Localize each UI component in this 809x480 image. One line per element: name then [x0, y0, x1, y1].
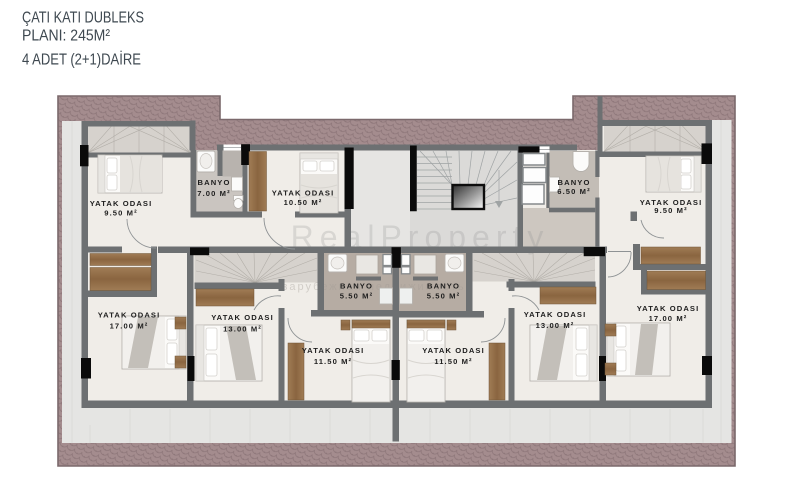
svg-text:17.00 M²: 17.00 M²	[649, 314, 688, 323]
svg-text:YATAK ODASI: YATAK ODASI	[272, 189, 335, 198]
svg-text:BANYO: BANYO	[198, 178, 231, 187]
svg-text:YATAK ODASI: YATAK ODASI	[637, 304, 700, 313]
svg-text:PLANI: 245M²: PLANI: 245M²	[22, 28, 111, 45]
svg-text:ÇATI KATI DUBLEKS: ÇATI KATI DUBLEKS	[22, 10, 144, 27]
svg-text:YATAK ODASI: YATAK ODASI	[422, 346, 485, 355]
svg-text:10.50 M²: 10.50 M²	[284, 198, 323, 207]
svg-text:11.50 M²: 11.50 M²	[314, 357, 352, 366]
svg-text:9.50 M²: 9.50 M²	[654, 206, 687, 215]
svg-text:9.50 M²: 9.50 M²	[104, 209, 137, 218]
svg-text:YATAK ODASI: YATAK ODASI	[211, 313, 274, 322]
svg-text:YATAK ODASI: YATAK ODASI	[90, 199, 153, 208]
svg-text:11.50 M²: 11.50 M²	[434, 357, 472, 366]
svg-text:7.00 M²: 7.00 M²	[197, 189, 230, 198]
svg-text:5.50 M²: 5.50 M²	[340, 292, 373, 301]
svg-text:13.00 M²: 13.00 M²	[223, 325, 262, 334]
svg-text:13.00 M²: 13.00 M²	[536, 321, 575, 330]
svg-text:BANYO: BANYO	[558, 178, 591, 187]
svg-text:17.00 M²: 17.00 M²	[110, 322, 149, 331]
svg-text:6.50 M²: 6.50 M²	[557, 187, 590, 196]
svg-text:YATAK ODASI: YATAK ODASI	[98, 311, 161, 320]
svg-text:YATAK ODASI: YATAK ODASI	[524, 310, 587, 319]
svg-text:4 ADET (2+1)DAİRE: 4 ADET (2+1)DAİRE	[22, 50, 141, 69]
svg-text:BANYO: BANYO	[340, 282, 373, 291]
svg-text:YATAK ODASI: YATAK ODASI	[302, 346, 365, 355]
svg-text:BANYO: BANYO	[427, 282, 460, 291]
svg-text:5.50 M²: 5.50 M²	[427, 292, 460, 301]
